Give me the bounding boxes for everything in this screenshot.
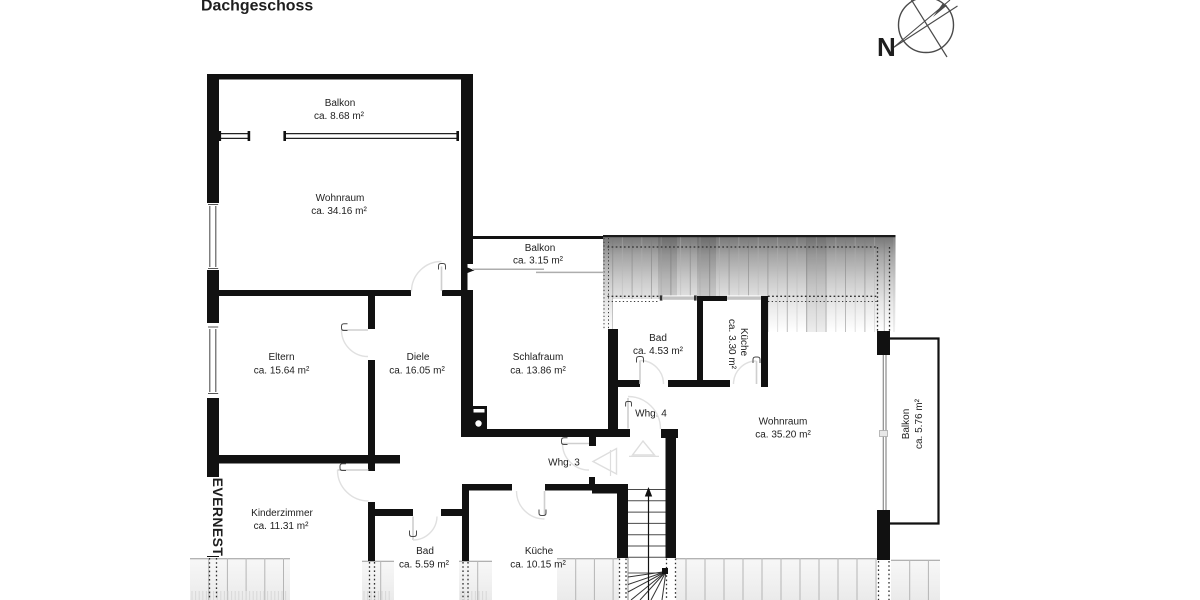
svg-text:ca. 35.20 m²: ca. 35.20 m² (755, 430, 811, 441)
svg-text:Balkon: Balkon (901, 409, 912, 440)
svg-text:Küche: Küche (738, 328, 749, 357)
svg-text:Bad: Bad (649, 333, 667, 344)
svg-text:ca. 8.68 m²: ca. 8.68 m² (314, 111, 365, 122)
svg-text:ca. 34.16 m²: ca. 34.16 m² (311, 206, 367, 217)
svg-text:N: N (877, 32, 896, 62)
svg-text:Küche: Küche (525, 546, 554, 557)
svg-text:Dachgeschoss: Dachgeschoss (201, 0, 313, 15)
svg-text:Bad: Bad (416, 546, 434, 557)
svg-text:Balkon: Balkon (325, 98, 356, 109)
svg-text:Whg. 4: Whg. 4 (635, 409, 667, 420)
svg-text:ca. 11.31 m²: ca. 11.31 m² (254, 521, 310, 532)
svg-text:ca. 15.64 m²: ca. 15.64 m² (254, 366, 310, 377)
svg-text:Wohnraum: Wohnraum (759, 417, 808, 428)
svg-text:ca. 16.05 m²: ca. 16.05 m² (389, 366, 445, 377)
svg-text:ca. 3.15 m²: ca. 3.15 m² (513, 256, 564, 267)
svg-text:Schlafraum: Schlafraum (513, 352, 564, 363)
svg-text:ca. 13.86 m²: ca. 13.86 m² (510, 366, 566, 377)
svg-text:ca. 3.30 m²: ca. 3.30 m² (726, 319, 737, 370)
svg-text:ca. 10.15 m²: ca. 10.15 m² (510, 560, 566, 571)
svg-text:EVERNEST: EVERNEST (210, 478, 226, 557)
svg-text:ca. 5.76 m²: ca. 5.76 m² (914, 398, 925, 449)
svg-text:ca. 5.59 m²: ca. 5.59 m² (399, 560, 450, 571)
svg-text:ca. 4.53 m²: ca. 4.53 m² (633, 346, 684, 357)
svg-text:Whg. 3: Whg. 3 (548, 458, 580, 469)
svg-text:Kinderzimmer: Kinderzimmer (251, 508, 313, 519)
svg-text:Balkon: Balkon (525, 243, 556, 254)
svg-text:Wohnraum: Wohnraum (316, 193, 365, 204)
svg-text:Eltern: Eltern (268, 352, 294, 363)
svg-text:Diele: Diele (407, 352, 430, 363)
